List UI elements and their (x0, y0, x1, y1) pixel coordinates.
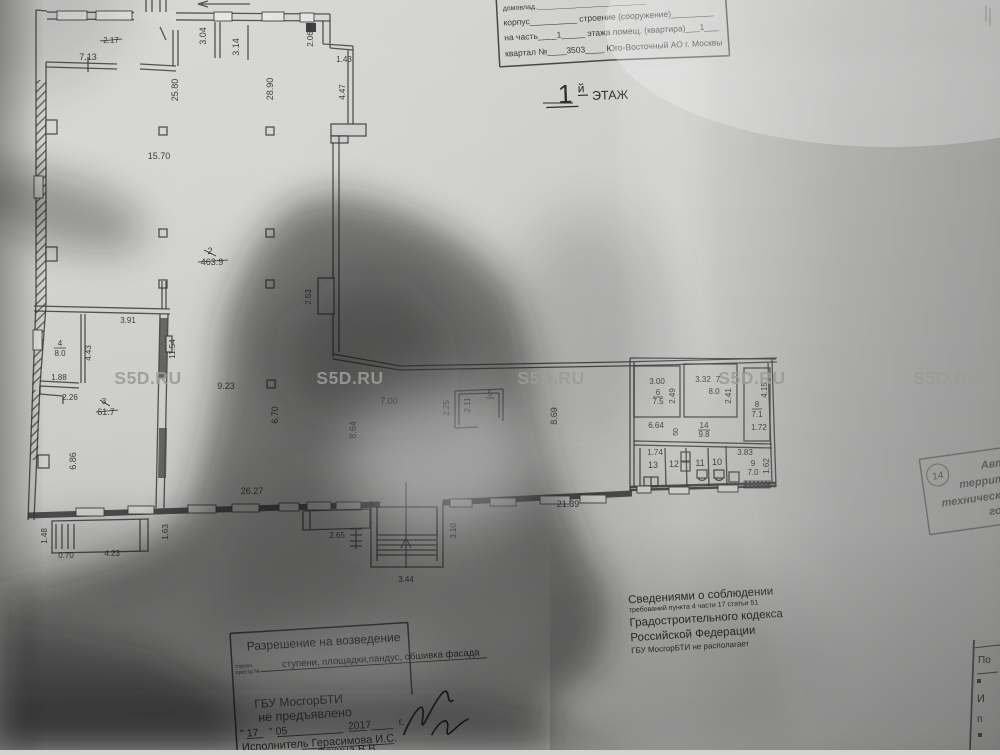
svg-text:S5D.RU: S5D.RU (114, 368, 181, 388)
svg-text:S5D.RU: S5D.RU (517, 368, 584, 388)
svg-text:S5D.RU: S5D.RU (718, 368, 785, 388)
svg-text:S5D.RU: S5D.RU (316, 368, 383, 388)
svg-text:S5D.RU: S5D.RU (913, 368, 980, 388)
